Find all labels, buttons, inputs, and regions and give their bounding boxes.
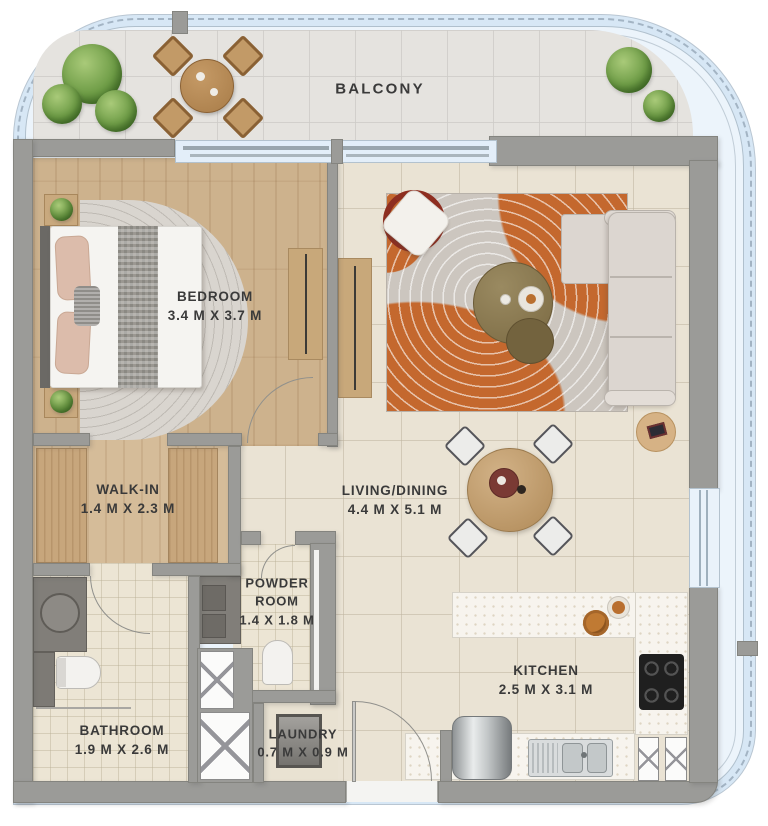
dining-cup [497,476,506,485]
bedroom-label: BEDROOM 3.4 M X 3.7 M [168,287,262,325]
potted-plant-icon [95,90,137,132]
wall-right-lower [689,586,718,783]
food-icon [612,601,625,614]
wall-bedroom-bottom-b [167,433,242,446]
room-name: LIVING/DINING [342,483,448,498]
console-line [305,254,307,354]
decor-item [526,294,536,304]
room-dims: 0.7 M X 0.9 M [257,744,348,762]
sliding-panel [341,146,489,150]
shaft-cell [200,651,234,709]
floor-plan: BALCONY BEDROOM 3.4 M X 3.7 M LIVING/DIN… [0,0,768,826]
food-plate [583,610,609,636]
kitchen-shaft-cell [665,737,687,781]
faucet-icon [581,752,587,758]
wall-bedroom-bottom-a [33,433,90,446]
door-glass-line [699,490,701,586]
balcony-label: BALCONY [335,78,425,99]
rail-post-top [172,11,188,34]
room-name: BALCONY [335,80,425,97]
rail-post-right [737,641,758,656]
bathroom-sink [40,593,80,633]
decor-item [517,485,526,494]
potted-plant-icon [42,84,82,124]
powder-room-label: POWDER ROOM 1.4 X 1.8 M [225,574,329,629]
room-dims: 1.4 X 1.8 M [225,611,329,629]
room-dims: 1.4 M X 2.3 M [81,499,175,518]
kitchen-label: KITCHEN 2.5 M X 3.1 M [499,661,593,699]
plate-icon [196,72,205,81]
balcony-side-door [689,488,720,588]
room-name: KITCHEN [513,663,579,678]
entrance-threshold [346,781,438,802]
room-name: LAUNDRY [269,727,338,742]
sliding-panel [346,154,489,157]
wall-top-left [13,139,175,157]
wall-bedroom-divider [327,160,338,447]
wall-powder-top-a [241,531,261,545]
wall-walkin-right [228,446,241,576]
nightstand-plant-icon [50,390,73,413]
wall-right-upper [689,160,718,490]
coffee-table-small [506,318,554,364]
wall-bottom-right [438,781,718,803]
room-name: WALK-IN [96,482,159,497]
kitchen-shaft-cell [638,737,659,781]
bed-blanket [118,226,158,388]
window-mullion [331,139,343,164]
door-glass-line [706,490,708,586]
sofa-body [608,212,676,406]
wall-top-right [489,136,718,166]
nightstand-plant-icon [50,198,73,221]
wardrobe-left [36,448,87,563]
plate-icon [210,88,218,96]
shower-wall [33,652,55,707]
sink-drainboard [532,743,558,773]
decor-cup [500,294,511,305]
wall-bottom-left [13,781,346,803]
wall-left [13,139,33,803]
room-name: BATHROOM [80,723,165,738]
toilet-tank [57,658,66,687]
sink-basin [587,743,607,773]
shower-glass-line [36,707,131,709]
wardrobe-right [168,448,218,563]
room-dims: 2.5 M X 3.1 M [499,680,593,699]
powder-cabinet [202,614,226,638]
accent-pillow [74,286,100,326]
shaft-cell [200,712,250,780]
room-name: BEDROOM [177,289,253,304]
powder-toilet [262,640,293,685]
fridge [452,716,512,780]
wall-walkin-bottom-a [33,563,90,576]
laundry-label: LAUNDRY 0.7 M X 0.9 M [257,726,348,763]
room-dims: 3.4 M X 3.7 M [168,306,262,325]
room-dims: 4.4 M X 5.1 M [342,500,448,519]
bush-icon [643,90,675,122]
bathroom-label: BATHROOM 1.9 M X 2.6 M [75,721,169,759]
wall-laundry-top [241,690,336,703]
walk-in-label: WALK-IN 1.4 M X 2.3 M [81,480,175,518]
cooktop [639,654,684,710]
sofa-armrest [604,390,676,406]
sliding-panel [190,154,336,157]
sink-basin [562,743,583,773]
fridge-wall-stub [440,730,452,783]
wall-bedroom-bottom-c [318,433,338,446]
bed-headboard [40,226,50,388]
room-name: POWDER ROOM [245,575,308,608]
room-dims: 1.9 M X 2.6 M [75,740,169,759]
outdoor-table [180,59,234,113]
console-line [354,266,356,390]
sofa-cushion-line [610,336,672,338]
living-dining-label: LIVING/DINING 4.4 M X 5.1 M [342,481,448,519]
bush-icon [606,47,652,93]
sofa-chaise [561,214,611,284]
sofa-cushion-line [610,276,672,278]
sliding-panel [183,146,329,150]
powder-sink [202,585,226,611]
